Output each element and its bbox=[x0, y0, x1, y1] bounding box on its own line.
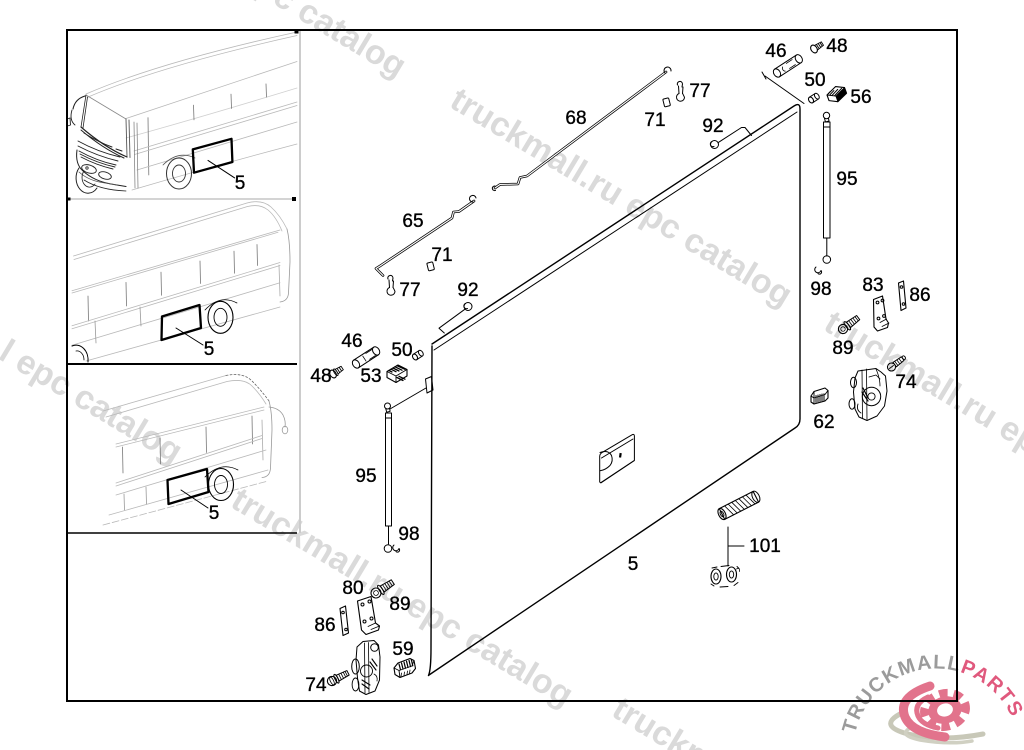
svg-text:50: 50 bbox=[391, 340, 412, 361]
svg-text:95: 95 bbox=[355, 466, 376, 487]
svg-text:5: 5 bbox=[235, 173, 246, 194]
svg-text:101: 101 bbox=[749, 536, 781, 557]
svg-text:80: 80 bbox=[342, 578, 363, 599]
svg-text:5: 5 bbox=[209, 503, 220, 524]
svg-text:86: 86 bbox=[909, 285, 930, 306]
svg-text:59: 59 bbox=[392, 639, 413, 660]
svg-text:77: 77 bbox=[689, 81, 710, 102]
svg-text:56: 56 bbox=[850, 87, 871, 108]
svg-text:89: 89 bbox=[832, 338, 853, 359]
svg-text:71: 71 bbox=[644, 110, 665, 131]
svg-text:5: 5 bbox=[628, 554, 639, 575]
svg-text:46: 46 bbox=[341, 331, 362, 352]
svg-text:98: 98 bbox=[810, 279, 831, 300]
svg-text:71: 71 bbox=[431, 245, 452, 266]
svg-text:98: 98 bbox=[398, 524, 419, 545]
svg-text:83: 83 bbox=[862, 275, 883, 296]
svg-text:74: 74 bbox=[305, 675, 327, 696]
svg-text:48: 48 bbox=[826, 36, 847, 57]
svg-text:5: 5 bbox=[204, 339, 215, 360]
svg-text:92: 92 bbox=[702, 116, 723, 137]
svg-text:48: 48 bbox=[310, 366, 331, 387]
svg-text:53: 53 bbox=[360, 366, 381, 387]
svg-text:89: 89 bbox=[389, 594, 410, 615]
svg-text:62: 62 bbox=[813, 412, 834, 433]
svg-text:77: 77 bbox=[399, 280, 420, 301]
svg-text:68: 68 bbox=[565, 108, 586, 129]
svg-text:65: 65 bbox=[402, 211, 423, 232]
svg-text:74: 74 bbox=[895, 372, 917, 393]
svg-text:86: 86 bbox=[314, 615, 335, 636]
svg-text:46: 46 bbox=[765, 41, 786, 62]
svg-text:50: 50 bbox=[804, 70, 825, 91]
svg-text:92: 92 bbox=[457, 280, 478, 301]
svg-text:95: 95 bbox=[836, 169, 857, 190]
